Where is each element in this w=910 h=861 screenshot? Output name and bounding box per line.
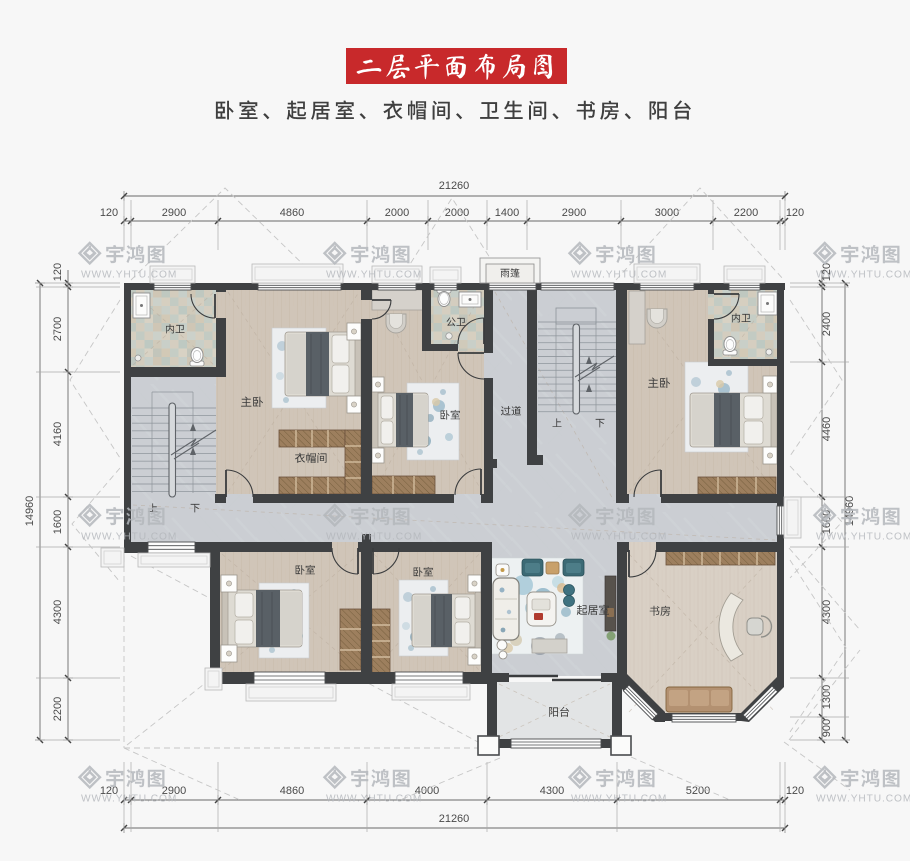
- svg-text:14960: 14960: [24, 496, 36, 527]
- svg-text:2700: 2700: [52, 317, 64, 341]
- svg-text:2400: 2400: [821, 312, 833, 336]
- svg-text:120: 120: [786, 207, 804, 219]
- svg-text:4860: 4860: [280, 785, 304, 797]
- svg-text:120: 120: [52, 263, 64, 281]
- svg-text:3000: 3000: [655, 207, 679, 219]
- svg-text:2900: 2900: [162, 207, 186, 219]
- svg-text:2900: 2900: [562, 207, 586, 219]
- svg-text:4300: 4300: [540, 785, 564, 797]
- svg-text:2000: 2000: [445, 207, 469, 219]
- svg-text:21260: 21260: [439, 813, 470, 825]
- svg-text:900: 900: [821, 719, 833, 737]
- svg-text:120: 120: [100, 207, 118, 219]
- svg-text:21260: 21260: [439, 180, 470, 192]
- svg-text:4860: 4860: [280, 207, 304, 219]
- svg-text:2200: 2200: [734, 207, 758, 219]
- svg-text:1400: 1400: [495, 207, 519, 219]
- svg-text:2200: 2200: [52, 697, 64, 721]
- svg-text:120: 120: [786, 785, 804, 797]
- svg-text:2000: 2000: [385, 207, 409, 219]
- svg-text:1600: 1600: [52, 510, 64, 534]
- svg-text:4300: 4300: [52, 600, 64, 624]
- svg-text:5200: 5200: [686, 785, 710, 797]
- svg-text:4160: 4160: [52, 422, 64, 446]
- svg-text:4460: 4460: [821, 417, 833, 441]
